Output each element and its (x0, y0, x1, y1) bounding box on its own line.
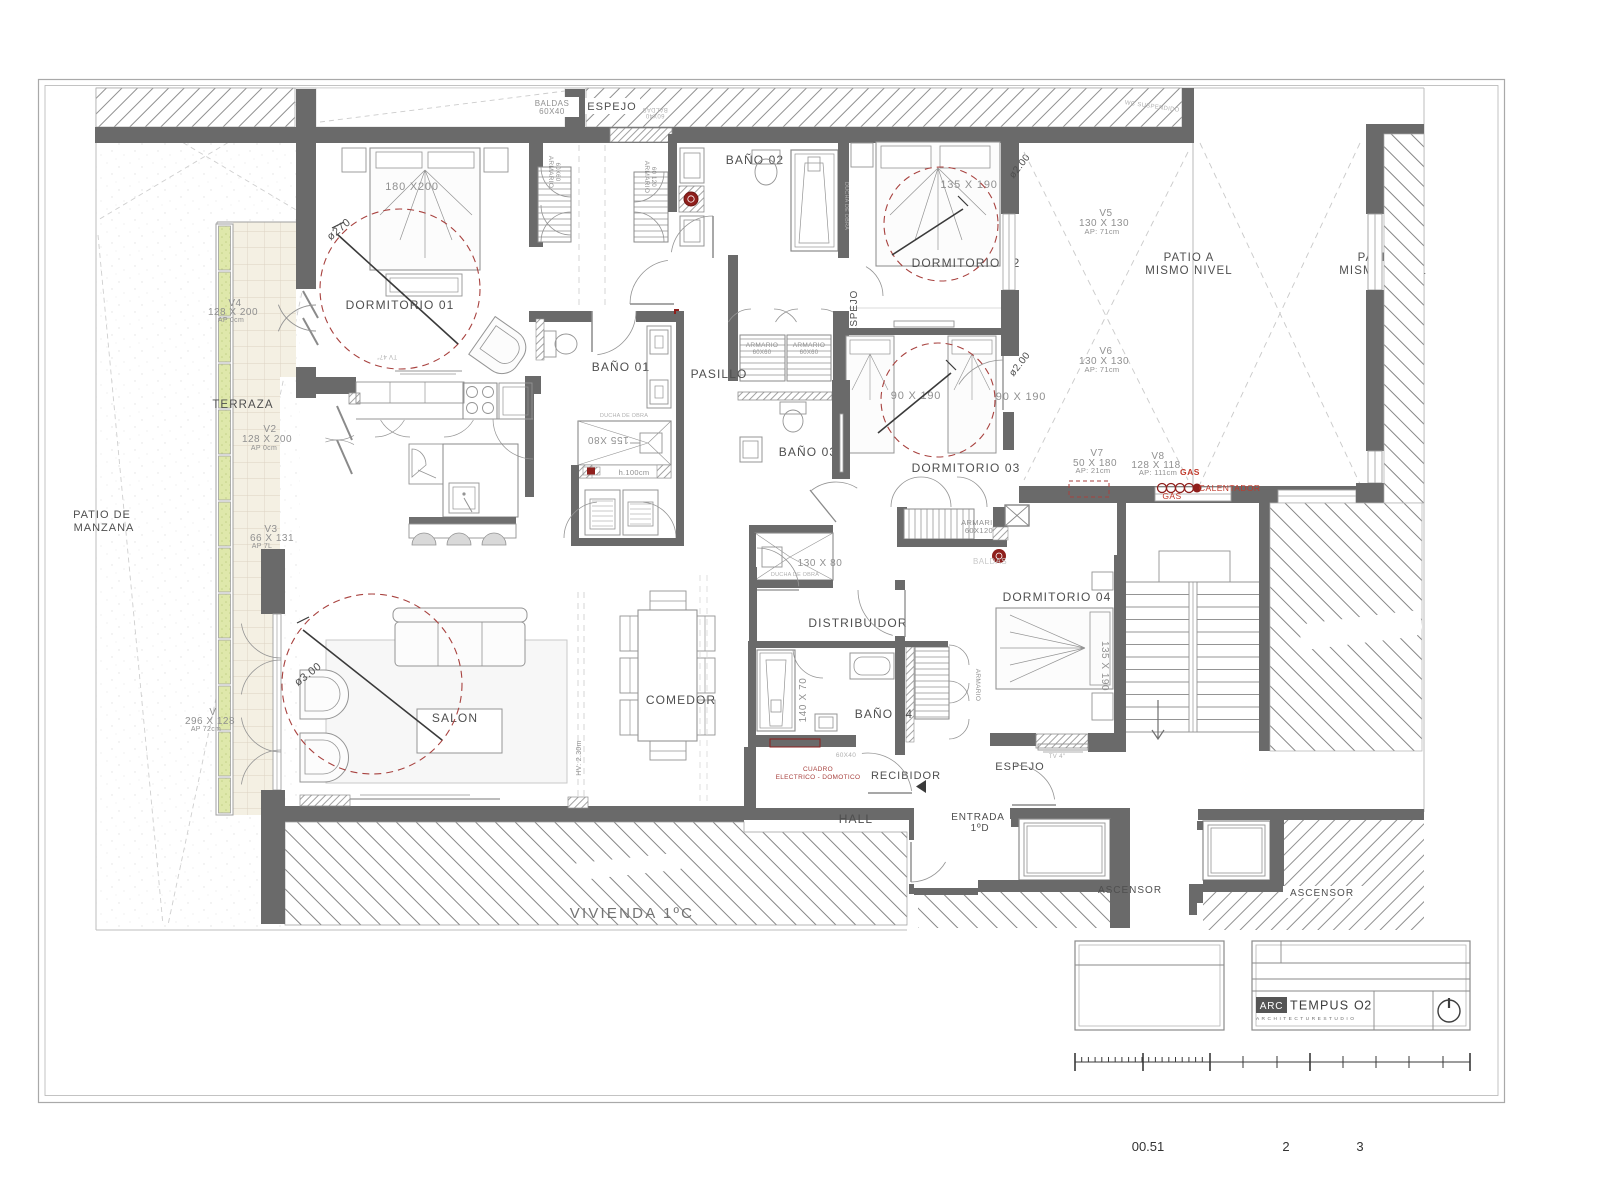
svg-text:DUCHA DE OBRA: DUCHA DE OBRA (843, 182, 849, 230)
svg-text:SALON: SALON (432, 711, 478, 725)
svg-text:BAÑO 01: BAÑO 01 (592, 360, 650, 374)
svg-text:RECIBIDOR: RECIBIDOR (871, 770, 941, 782)
svg-text:60X60: 60X60 (554, 163, 560, 182)
svg-text:60X60: 60X60 (800, 350, 819, 356)
svg-text:ASCENSOR: ASCENSOR (1290, 888, 1354, 899)
svg-text:155 X80: 155 X80 (587, 434, 628, 445)
svg-text:ARMARIO: ARMARIO (793, 342, 825, 349)
svg-text:AP: 111cm: AP: 111cm (1139, 468, 1177, 477)
svg-text:ARMARIO: ARMARIO (643, 161, 650, 193)
svg-text:ARC: ARC (1260, 1001, 1284, 1012)
svg-text:60X40: 60X40 (836, 752, 856, 759)
svg-text:3: 3 (1356, 1139, 1363, 1154)
svg-text:135 X 190: 135 X 190 (940, 179, 997, 191)
svg-text:1ºD: 1ºD (971, 823, 990, 834)
svg-text:ARMARIO: ARMARIO (547, 156, 554, 188)
svg-text:TV 47″: TV 47″ (376, 353, 397, 359)
svg-text:AP 0cm: AP 0cm (218, 317, 244, 324)
svg-text:180 X200: 180 X200 (385, 181, 439, 193)
svg-text:DORMITORIO 01: DORMITORIO 01 (346, 298, 455, 312)
svg-text:BAÑO 03: BAÑO 03 (779, 445, 837, 459)
svg-text:140 X 70: 140 X 70 (798, 678, 809, 723)
svg-text:PASILLO: PASILLO (691, 367, 748, 381)
svg-text:PATIO DE: PATIO DE (73, 509, 131, 521)
svg-text:60X60: 60X60 (753, 350, 772, 356)
svg-text:HV: 2.30m: HV: 2.30m (576, 740, 583, 776)
svg-text:135 X 190: 135 X 190 (1099, 641, 1110, 691)
svg-text:ENTRADA: ENTRADA (951, 812, 1004, 823)
svg-text:2: 2 (1282, 1139, 1289, 1154)
svg-text:AP: 71cm: AP: 71cm (1085, 227, 1120, 236)
svg-text:COMEDOR: COMEDOR (646, 693, 716, 707)
svg-text:GAS: GAS (1162, 491, 1181, 501)
svg-text:AP 0cm: AP 0cm (251, 445, 277, 452)
svg-text:90 X 190: 90 X 190 (891, 390, 941, 402)
svg-text:ARMARIO: ARMARIO (974, 669, 981, 701)
svg-text:AP 7L: AP 7L (252, 543, 272, 550)
svg-text:AP 72cm: AP 72cm (191, 726, 221, 733)
svg-text:ESPEJO: ESPEJO (849, 290, 860, 334)
svg-text:O2: O2 (1354, 999, 1372, 1013)
svg-text:TV 4″: TV 4″ (1049, 754, 1066, 760)
svg-text:128 X 200: 128 X 200 (242, 434, 292, 445)
svg-text:60X120: 60X120 (965, 526, 993, 535)
svg-text:60 120: 60 120 (650, 167, 656, 188)
svg-text:ESPEJO: ESPEJO (995, 761, 1044, 773)
svg-text:HALL: HALL (839, 812, 873, 826)
svg-text:AP: 21cm: AP: 21cm (1076, 466, 1111, 475)
svg-text:MANZANA: MANZANA (74, 522, 135, 534)
svg-text:GAS: GAS (1180, 467, 1200, 477)
svg-text:CUADRO: CUADRO (803, 766, 833, 773)
svg-text:DUCHA DE OBRA: DUCHA DE OBRA (600, 413, 648, 419)
svg-text:VIVIENDA 1ºC: VIVIENDA 1ºC (570, 905, 694, 922)
svg-text:PATIO A: PATIO A (1164, 252, 1215, 264)
svg-text:BALDAS: BALDAS (973, 557, 1007, 566)
svg-text:MISMO NIVEL: MISMO NIVEL (1145, 265, 1233, 277)
svg-text:130 X 80: 130 X 80 (798, 558, 843, 569)
svg-text:DISTRIBUIDOR: DISTRIBUIDOR (808, 616, 907, 630)
svg-text:CALENTADOR: CALENTADOR (1199, 483, 1260, 493)
svg-text:TERRAZA: TERRAZA (212, 399, 273, 411)
svg-text:00.51: 00.51 (1132, 1139, 1165, 1154)
svg-text:DORMITORIO 03: DORMITORIO 03 (912, 461, 1021, 475)
svg-text:TEMPUS: TEMPUS (1290, 999, 1349, 1013)
svg-text:ARMARIO: ARMARIO (746, 342, 778, 349)
svg-text:DORMITORIO 04: DORMITORIO 04 (1003, 590, 1112, 604)
svg-text:BALDAS: BALDAS (642, 106, 667, 112)
svg-text:60X40: 60X40 (539, 107, 565, 116)
svg-text:ASCENSOR: ASCENSOR (1098, 885, 1162, 896)
svg-text:AP: 71cm: AP: 71cm (1085, 365, 1120, 374)
svg-text:A R C H I T E C T U R E S T: A R C H I T E C T U R E S T U D I O (1256, 1016, 1355, 1022)
svg-text:60X40: 60X40 (645, 112, 664, 118)
svg-text:ELECTRICO - DOMOTICO: ELECTRICO - DOMOTICO (776, 774, 861, 781)
svg-text:h.100cm: h.100cm (619, 468, 650, 477)
svg-text:ESPEJO: ESPEJO (587, 101, 636, 113)
